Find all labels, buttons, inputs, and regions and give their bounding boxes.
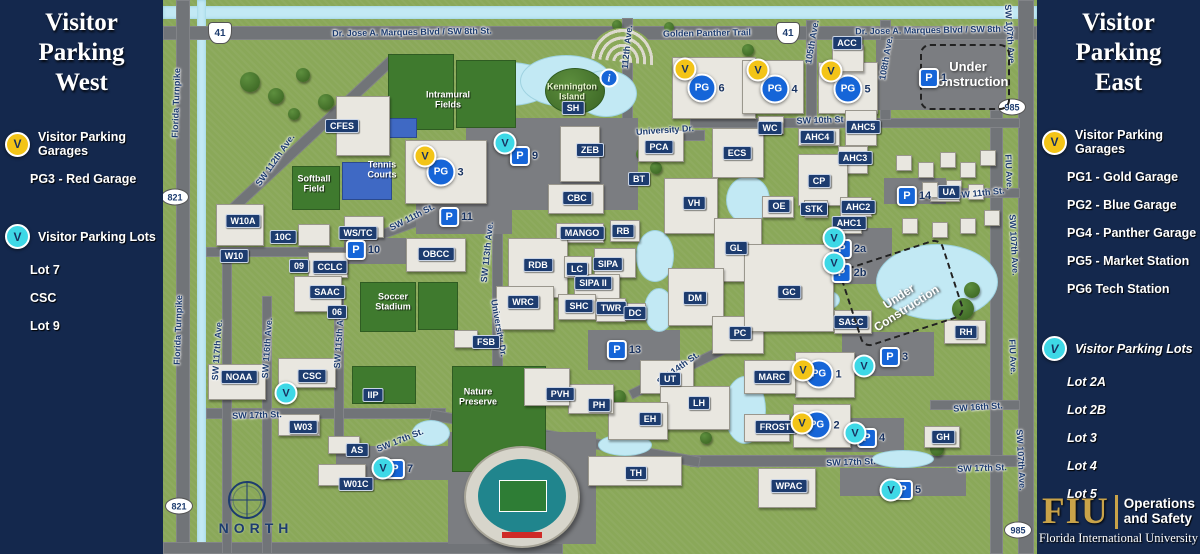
building-label: WS/TC: [339, 226, 378, 240]
fiu-logo: FIU: [1042, 495, 1109, 528]
legend-garages-east: V Visitor Parking Garages: [1037, 128, 1200, 156]
lot-number: 5: [915, 484, 921, 496]
legend-garages-header: Visitor Parking Garages: [38, 130, 163, 158]
building-label: PC: [729, 326, 752, 340]
building-label: SAAC: [309, 285, 345, 299]
lot-number: 13: [629, 344, 641, 356]
building-footprint: [932, 222, 948, 238]
area-label: Intramural Fields: [426, 90, 470, 111]
legend-lots-east: V Visitor Parking Lots: [1037, 336, 1200, 361]
lot-number: 7: [407, 463, 413, 475]
building-footprint: [298, 224, 330, 246]
campus-map: NORTHUnder ConstructionUnder Constructio…: [0, 0, 1200, 554]
building-label: STK: [800, 202, 828, 216]
building-label: IIP: [362, 388, 383, 402]
legend-item-lot: Lot 7: [30, 263, 163, 277]
building-label: GC: [777, 285, 801, 299]
lot-number: 14: [919, 190, 931, 202]
legend-item-garage: PG5 - Market Station: [1067, 254, 1200, 268]
garage-number: 1: [835, 368, 841, 380]
fiu-university-label: Florida International University: [1037, 531, 1200, 546]
garage-number: 5: [864, 83, 870, 95]
building-label: CCLC: [313, 260, 348, 274]
lake: [872, 450, 934, 468]
left-panel: Visitor Parking West V Visitor Parking G…: [0, 0, 163, 554]
building-label: CSC: [297, 369, 326, 383]
building-label: W10: [220, 249, 249, 263]
garage-v-icon: V: [5, 132, 30, 157]
road-label: SW 17th St.: [957, 462, 1007, 474]
building-label: UT: [659, 372, 681, 386]
lot-marker: P1: [919, 68, 947, 88]
building-label: ZEB: [576, 143, 604, 157]
lot-number: 10: [368, 244, 380, 256]
lot-marker: P13: [607, 340, 641, 360]
lot-v-icon: V: [494, 132, 517, 155]
building-label: NOAA: [221, 370, 258, 384]
building-footprint: [896, 155, 912, 171]
lot-number: 11: [461, 211, 473, 223]
garage-marker: PG6: [687, 74, 724, 103]
tree-icon: [700, 432, 712, 444]
legend-item-lot: Lot 3: [1067, 431, 1200, 445]
legend-item-garage: PG3 - Red Garage: [30, 172, 163, 186]
building-label: RDB: [523, 258, 553, 272]
legend-item-lot: Lot 9: [30, 319, 163, 333]
building-label: WC: [758, 121, 783, 135]
canal: [163, 6, 1037, 19]
lot-number: 4: [879, 432, 885, 444]
area-label: Softball Field: [298, 174, 331, 195]
lot-number: 3: [902, 351, 908, 363]
building-label: BT: [628, 172, 650, 186]
building-label: OE: [767, 199, 790, 213]
garage-v-icon: V: [820, 60, 843, 83]
road-label: SW 17th St.: [232, 409, 282, 421]
road-label: SW 10th St: [796, 114, 843, 126]
legend-lots-west: V Visitor Parking Lots: [0, 224, 163, 249]
stadium-banner: [502, 532, 542, 538]
p-icon: P: [607, 340, 627, 360]
highway-shield: 821: [165, 498, 193, 515]
building-footprint: [902, 218, 918, 234]
lot-marker: P14: [897, 186, 931, 206]
building-label: AHC2: [841, 200, 876, 214]
building-label: W10A: [225, 214, 260, 228]
legend-item-garage: PG4 - Panther Garage: [1067, 226, 1200, 240]
building-label: RH: [955, 325, 978, 339]
building-label: 10C: [270, 230, 297, 244]
tree-icon: [650, 162, 662, 174]
legend-item-lot: Lot 2B: [1067, 403, 1200, 417]
building-footprint: [984, 210, 1000, 226]
legend-item-lot: Lot 2A: [1067, 375, 1200, 389]
lot-number: 2b: [854, 267, 867, 279]
road-segment: [990, 110, 1003, 554]
lot-v-icon: V: [1042, 336, 1067, 361]
lot-v-icon: V: [853, 355, 876, 378]
p-icon: P: [439, 207, 459, 227]
building-label: LH: [688, 396, 710, 410]
building-label: AHC5: [846, 120, 881, 134]
road-label: FIU Ave.: [1003, 154, 1015, 190]
area-label: Kennington Island: [547, 82, 597, 103]
panel-title-east: Visitor Parking East: [1039, 8, 1198, 98]
garage-number: 2: [833, 419, 839, 431]
lot-v-icon: V: [372, 457, 395, 480]
building-label: OBCC: [418, 247, 455, 261]
building-label: AHC3: [838, 151, 873, 165]
info-icon: i: [600, 69, 619, 88]
lot-marker: P10: [346, 240, 380, 260]
highway-shield: 41: [208, 22, 232, 44]
lot-v-icon: V: [5, 224, 30, 249]
lot-v-icon: V: [823, 227, 846, 250]
sports-field: [418, 282, 458, 330]
garage-number: 3: [457, 166, 463, 178]
p-icon: P: [346, 240, 366, 260]
building-label: FROST: [755, 420, 796, 434]
tree-icon: [288, 108, 300, 120]
lot-number: 9: [532, 150, 538, 162]
garage-marker: PG4: [760, 75, 797, 104]
legend-lots-header: Visitor Parking Lots: [38, 230, 156, 244]
building-label: LC: [566, 262, 588, 276]
right-panel: Visitor Parking East V Visitor Parking G…: [1037, 0, 1200, 554]
legend-item-garage: PG2 - Blue Garage: [1067, 198, 1200, 212]
tree-icon: [296, 68, 310, 82]
stadium-pitch: [499, 480, 547, 512]
lot-v-icon: V: [880, 479, 903, 502]
building-footprint: [918, 162, 934, 178]
building-label: VH: [683, 196, 706, 210]
road-label: Golden Panther Trail: [663, 27, 751, 39]
lot-v-icon: V: [823, 252, 846, 275]
legend-garages-header: Visitor Parking Garages: [1075, 128, 1200, 156]
building-label: AS: [346, 443, 369, 457]
building-label: PH: [588, 398, 611, 412]
building-label: RB: [612, 224, 635, 238]
building-label: 06: [327, 305, 347, 319]
lot-v-icon: V: [844, 422, 867, 445]
north-label: NORTH: [219, 520, 294, 536]
garage-v-icon: V: [414, 145, 437, 168]
garage-v-icon: V: [674, 58, 697, 81]
building-label: SHC: [564, 299, 593, 313]
fiu-footer: FIU Operations and Safety Florida Intern…: [1037, 495, 1200, 546]
building-label: WPAC: [771, 479, 808, 493]
building-footprint: [960, 162, 976, 178]
building-label: SIPA: [593, 257, 623, 271]
lot-marker: P3: [880, 347, 908, 367]
building-label: ACC: [832, 36, 862, 50]
garage-v-icon: V: [1042, 130, 1067, 155]
road-label: FIU Ave.: [1007, 339, 1019, 375]
tree-icon: [240, 72, 260, 92]
area-label: Tennis Courts: [368, 160, 397, 181]
building-label: TWR: [596, 301, 627, 315]
building-label: ECS: [723, 146, 752, 160]
north-compass-icon: [228, 481, 266, 519]
building-label: W01C: [338, 477, 373, 491]
p-icon: P: [880, 347, 900, 367]
building-label: SH: [562, 101, 585, 115]
road-label: SW 17th St.: [826, 456, 876, 468]
highway-shield: 821: [161, 189, 189, 206]
p-icon: P: [919, 68, 939, 88]
building-label: MANGO: [560, 226, 605, 240]
building-label: SIPA II: [574, 276, 612, 290]
lot-v-icon: V: [275, 382, 298, 405]
highway-shield: 985: [1004, 522, 1032, 539]
building-label: 09: [289, 259, 309, 273]
garage-v-icon: V: [791, 412, 814, 435]
canal: [197, 0, 206, 554]
building-footprint: [960, 218, 976, 234]
football-stadium: [464, 446, 580, 548]
fiu-dept-label: Operations and Safety: [1124, 497, 1195, 527]
building-label: CP: [808, 174, 831, 188]
legend-garages-west: V Visitor Parking Garages: [0, 130, 163, 158]
legend-lots-header: Visitor Parking Lots: [1075, 342, 1193, 356]
building-footprint: [980, 150, 996, 166]
building-label: MARC: [754, 370, 791, 384]
tree-icon: [318, 94, 334, 110]
building-label: GL: [725, 241, 748, 255]
building-label: PVH: [546, 387, 575, 401]
highway-shield: 41: [776, 22, 800, 44]
garage-v-icon: V: [792, 359, 815, 382]
lot-number: 2a: [854, 243, 866, 255]
building-label: UA: [938, 185, 961, 199]
legend-item-lot: CSC: [30, 291, 163, 305]
building-label: DC: [624, 306, 647, 320]
building-label: PCA: [644, 140, 673, 154]
lot-marker: P11: [439, 207, 473, 227]
legend-item-garage: PG6 Tech Station: [1067, 282, 1200, 296]
lot-number: 1: [941, 72, 947, 84]
garage-number: 4: [791, 83, 797, 95]
legend-item-garage: PG1 - Gold Garage: [1067, 170, 1200, 184]
fiu-logo-divider: [1115, 495, 1118, 529]
building-label: CBC: [562, 191, 592, 205]
tree-icon: [964, 282, 980, 298]
building-label: CFES: [325, 119, 359, 133]
garage-number: 6: [718, 82, 724, 94]
building-label: W03: [289, 420, 318, 434]
area-label: Soccer Stadium: [375, 292, 411, 313]
legend-item-lot: Lot 4: [1067, 459, 1200, 473]
garage-v-icon: V: [747, 59, 770, 82]
building-label: WRC: [507, 295, 539, 309]
building-footprint: [940, 152, 956, 168]
building-label: FSB: [472, 335, 500, 349]
building-label: EH: [639, 412, 662, 426]
tree-icon: [742, 44, 754, 56]
building-label: DM: [683, 291, 707, 305]
panel-title-west: Visitor Parking West: [2, 8, 161, 98]
building-label: TH: [625, 466, 647, 480]
building-label: AHC4: [800, 130, 835, 144]
p-icon: P: [897, 186, 917, 206]
building-label: GH: [931, 430, 955, 444]
tree-icon: [268, 88, 284, 104]
area-label: Nature Preserve: [459, 387, 497, 408]
